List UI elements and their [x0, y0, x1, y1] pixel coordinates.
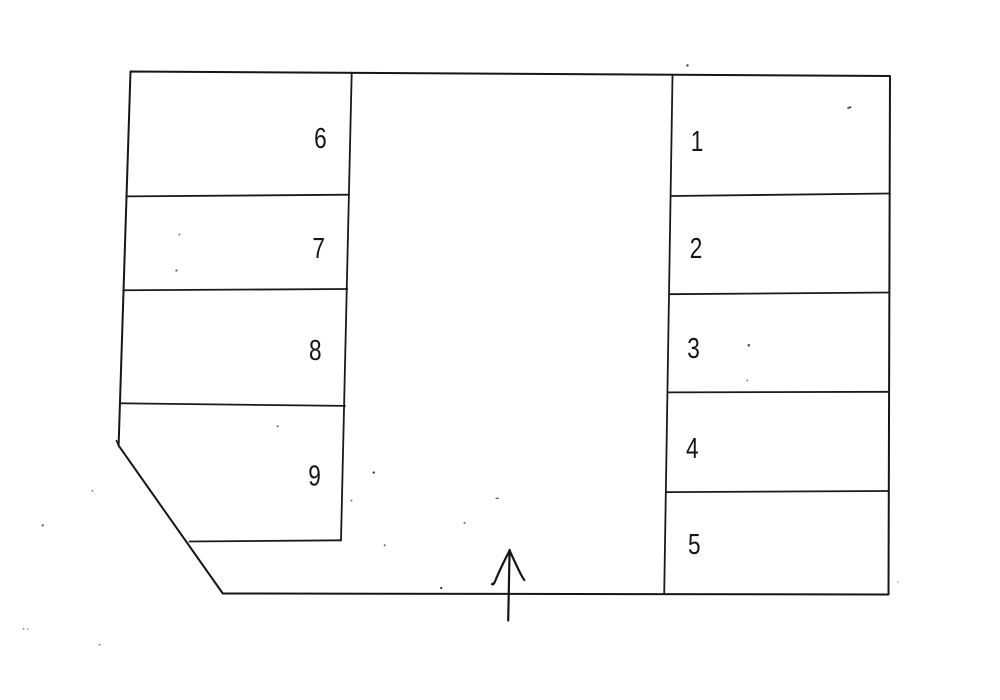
svg-text:8: 8	[309, 333, 322, 366]
svg-text:5: 5	[688, 527, 701, 560]
svg-text:3: 3	[687, 331, 700, 364]
svg-text:9: 9	[308, 459, 321, 492]
svg-text:6: 6	[314, 121, 327, 154]
svg-text:7: 7	[312, 231, 325, 264]
svg-text:1: 1	[691, 124, 704, 157]
svg-text:2: 2	[690, 231, 703, 264]
svg-text:4: 4	[686, 431, 699, 464]
